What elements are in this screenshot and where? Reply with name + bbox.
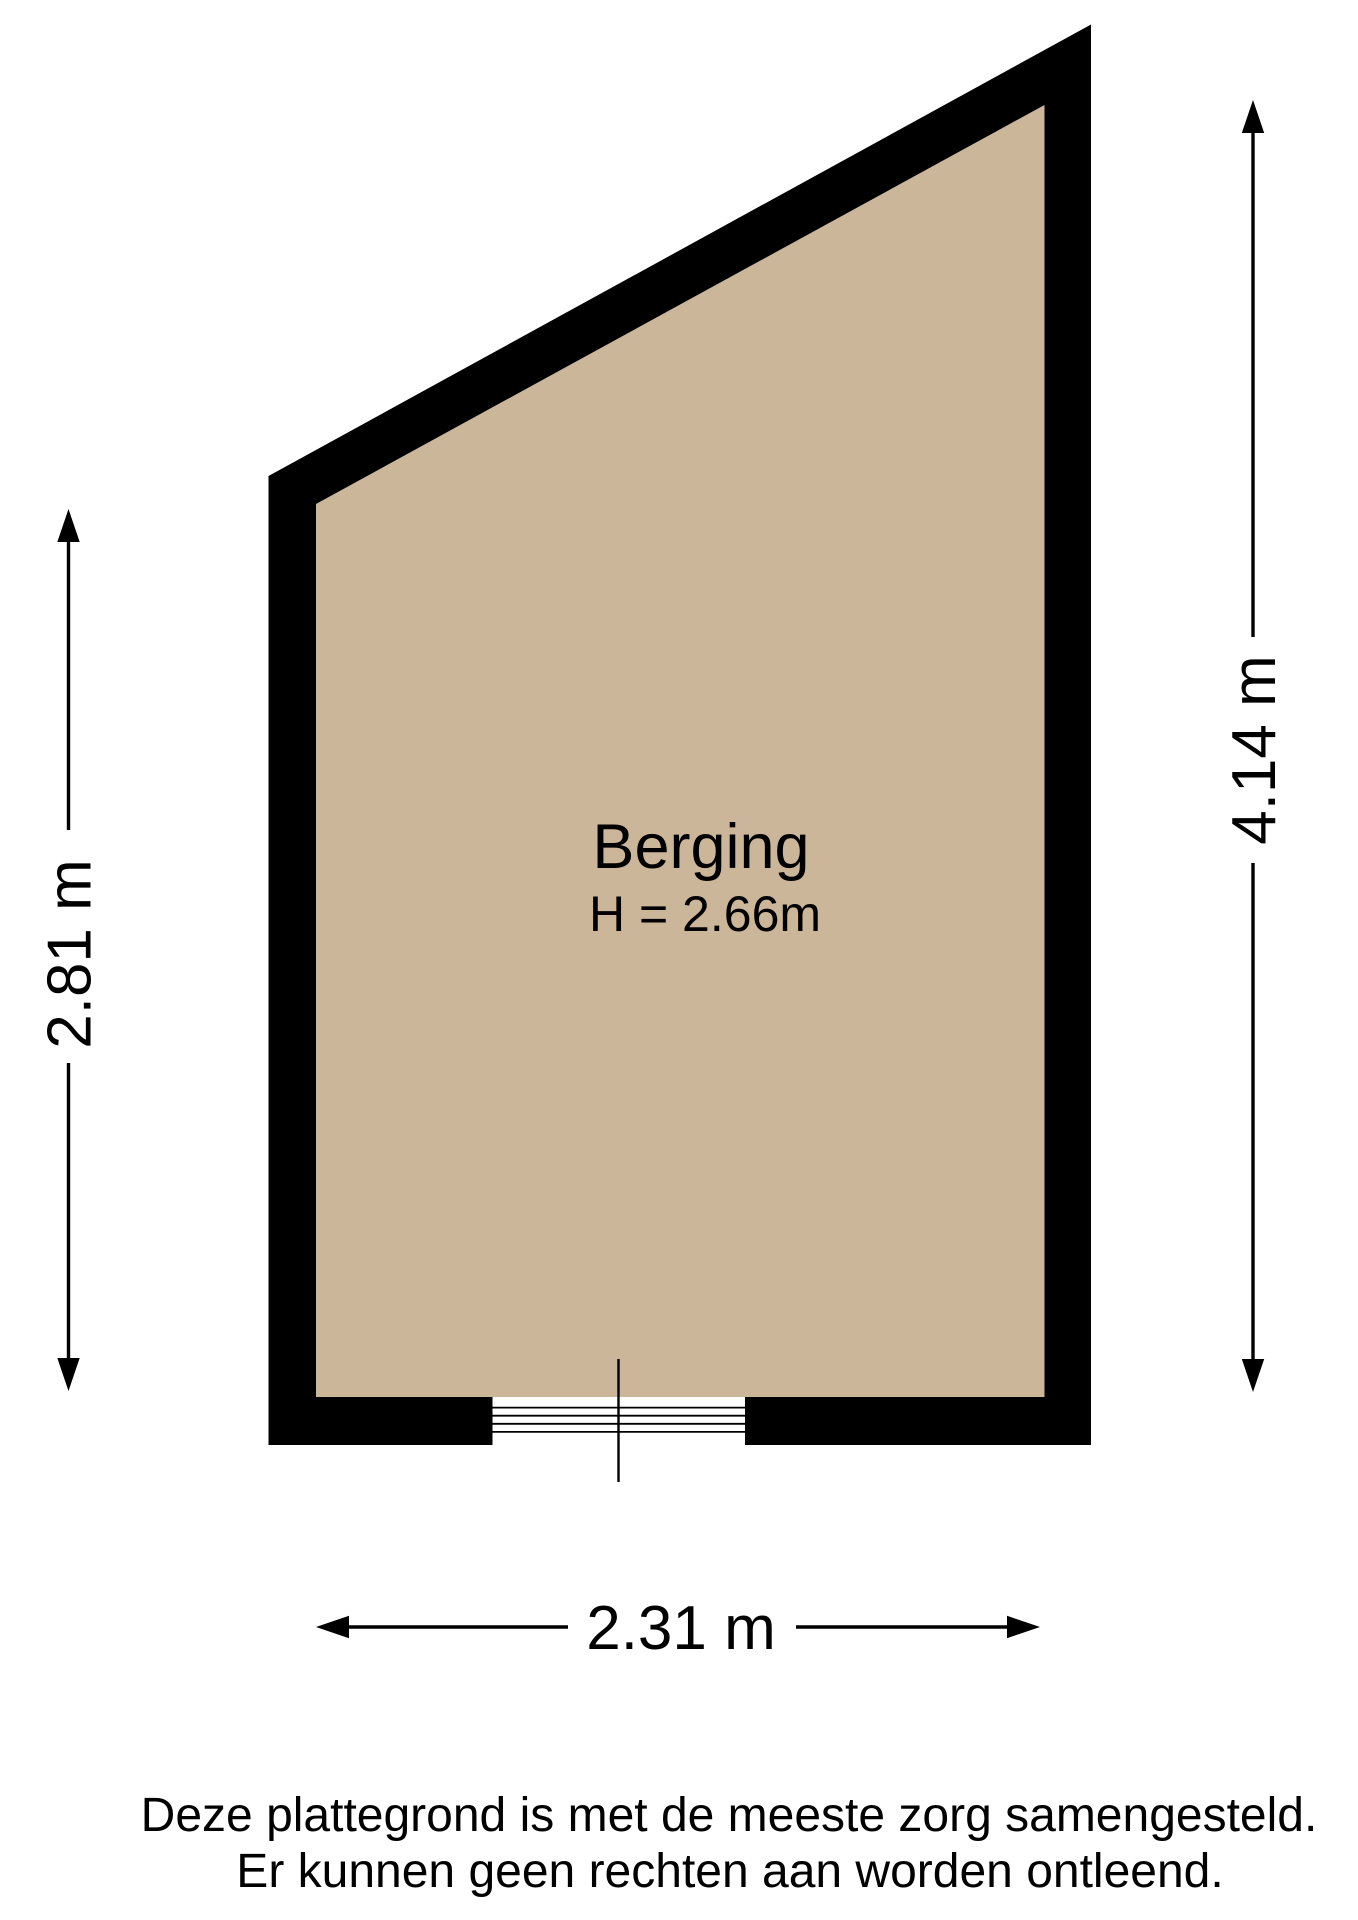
- svg-text:H = 2.66m: H = 2.66m: [589, 886, 821, 942]
- svg-text:Berging: Berging: [592, 812, 809, 882]
- svg-text:4.14 m: 4.14 m: [1220, 655, 1289, 845]
- svg-text:2.81 m: 2.81 m: [36, 859, 105, 1049]
- svg-text:Er kunnen geen rechten aan wor: Er kunnen geen rechten aan worden ontlee…: [236, 1845, 1223, 1898]
- svg-text:2.31 m: 2.31 m: [586, 1594, 776, 1663]
- svg-text:Deze plattegrond is met de mee: Deze plattegrond is met de meeste zorg s…: [141, 1789, 1318, 1842]
